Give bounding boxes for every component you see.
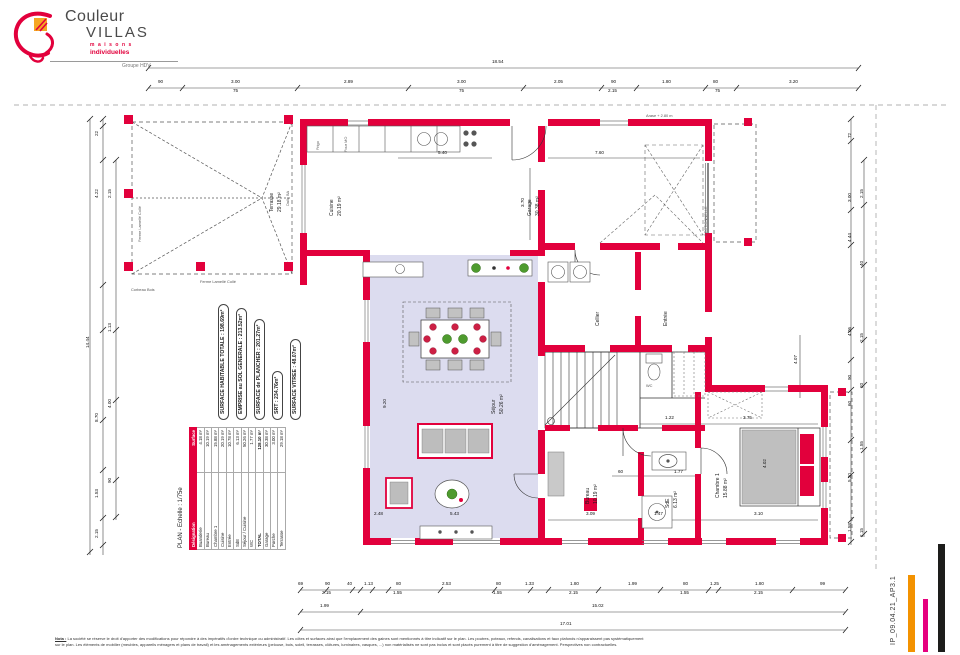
table-row: SdE6.13 m² <box>234 428 241 550</box>
table-annex-row: Garage30.38 m² <box>263 428 270 550</box>
staircase <box>545 352 617 428</box>
brand-tagline-1: maisons <box>90 42 135 48</box>
surface-pill-habitable: SURFACE HABITABLE TOTALE : 198.69m² <box>218 304 229 420</box>
table-row: Cuisine20.19 m² <box>219 428 226 550</box>
plan-scale-title: PLAN - Echelle : 1/75e <box>178 487 184 548</box>
garage-door <box>706 163 709 233</box>
bedroom-furniture <box>708 392 820 506</box>
accent-bar-black <box>938 544 945 652</box>
surface-pill-plancher: SURFACE de PLANCHER : 201.27m² <box>254 319 265 420</box>
table-annex-row: Terrasse29.18 m² <box>278 428 285 550</box>
brand-tagline-2: individuelles <box>90 49 129 56</box>
table-row: Chambre 115.88 m² <box>212 428 219 550</box>
garage-roof-hint <box>600 145 703 243</box>
logo-swirl-icon <box>10 6 62 64</box>
table-row: Entrée10.78 m² <box>226 428 233 550</box>
dressing-shelves <box>674 352 705 396</box>
bathroom-fixtures <box>642 452 686 528</box>
surface-pill-srt: SRT : 234.76m² <box>272 371 283 420</box>
surface-table: DésignationSurface Buanderie4.18 m² Bure… <box>189 427 286 550</box>
surface-pill-emprise: EMPRISE au SOL GENERALE : 213.52m² <box>236 308 247 420</box>
table-row: Buanderie4.18 m² <box>197 428 204 550</box>
table-row: Bureau10.19 m² <box>204 428 211 550</box>
office-furniture <box>548 452 597 511</box>
legal-note: Nota : La société se réserve le droit d'… <box>55 636 850 648</box>
table-header-area: Surface <box>190 428 197 473</box>
floor-plan-page: Couleur VILLAS maisons individuelles Gro… <box>0 0 960 655</box>
floor-plan-drawing <box>0 0 960 655</box>
kitchen-counter <box>307 126 476 152</box>
table-row: WC1.77 m² <box>248 428 255 550</box>
legal-note-label: Nota : <box>55 636 66 641</box>
toilet-fixture <box>646 354 662 380</box>
surface-pill-vitree: SURFACE VITREE : 48.07m² <box>290 339 301 420</box>
accent-bar-pink <box>923 599 928 652</box>
terrace-roof-outline <box>132 122 292 274</box>
table-total-row: TOTAL128.10 m² <box>256 428 263 550</box>
logo-divider <box>50 61 178 62</box>
legal-note-line1: La société se réserve le droit d'apporte… <box>67 636 643 641</box>
drawing-reference-code: IP_09.04.21_AP3.1 <box>890 576 897 645</box>
room-schedule: DésignationSurface Buanderie4.18 m² Bure… <box>189 427 286 550</box>
brand-logo: Couleur VILLAS maisons individuelles Gro… <box>10 6 180 68</box>
table-header-name: Désignation <box>190 473 197 550</box>
brand-group: Groupe HDV <box>122 63 151 69</box>
laundry-appliances <box>548 262 590 282</box>
table-annex-row: Porche3.00 m² <box>270 428 277 550</box>
brand-name-line2: VILLAS <box>86 24 149 41</box>
table-row: Séjour / Cuisine50.26 m² <box>241 428 248 550</box>
legal-note-line2: sur le plan. Les éléments de mobilier (m… <box>55 642 617 647</box>
accent-bar-orange <box>908 575 915 652</box>
